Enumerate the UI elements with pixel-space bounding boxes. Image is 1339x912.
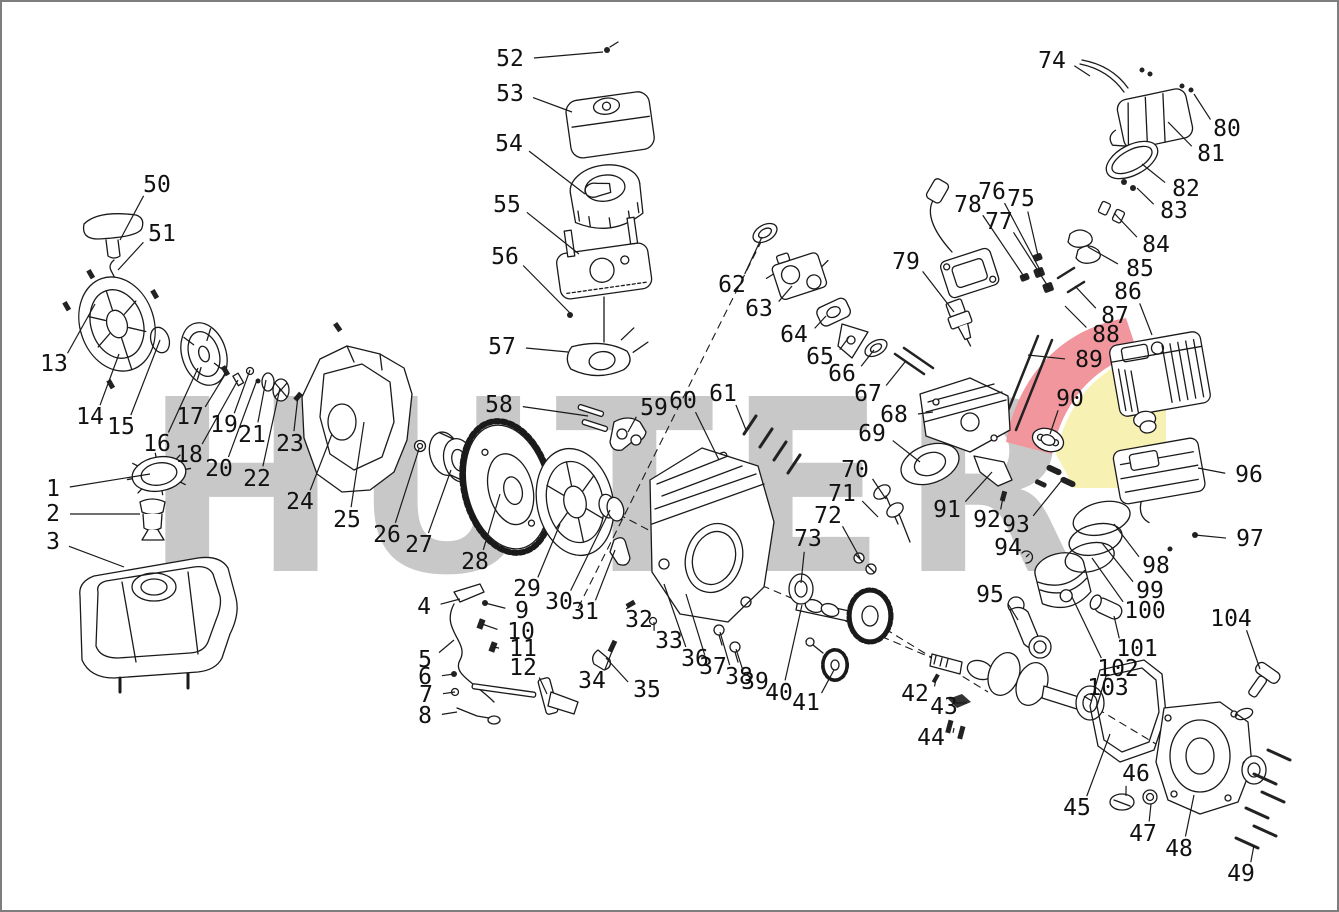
oil-cap-46 — [1110, 794, 1134, 810]
leader-line-80 — [1194, 94, 1211, 120]
part-label-58: 58 — [485, 392, 513, 418]
leader-line-9 — [485, 603, 505, 608]
flywheel-nut — [415, 441, 426, 452]
recoil-starter-housing — [67, 267, 167, 381]
leader-line-7 — [443, 692, 455, 694]
leader-line-67 — [886, 362, 905, 385]
cylinder-head — [920, 378, 1010, 452]
part-label-23: 23 — [276, 431, 304, 457]
part-label-95: 95 — [976, 582, 1004, 608]
part-label-22: 22 — [243, 466, 271, 492]
fuel-valve — [140, 499, 165, 540]
part-label-86: 86 — [1114, 279, 1142, 305]
part-label-18: 18 — [175, 442, 203, 468]
part-label-83: 83 — [1160, 198, 1188, 224]
part-label-79: 79 — [892, 249, 920, 275]
leader-line-98 — [1114, 524, 1139, 557]
part-label-45: 45 — [1063, 795, 1091, 821]
bolt-92 — [1000, 491, 1007, 502]
leader-line-53 — [533, 98, 572, 112]
leader-line-45 — [1087, 734, 1110, 796]
leader-line-3 — [69, 546, 124, 567]
part-label-8: 8 — [418, 703, 432, 729]
part-label-13: 13 — [40, 351, 68, 377]
part-label-34: 34 — [578, 668, 606, 694]
part-label-80: 80 — [1213, 116, 1241, 142]
part-label-47: 47 — [1129, 821, 1157, 847]
starter-pawl — [610, 538, 630, 565]
connecting-rod — [1008, 597, 1051, 658]
part-label-3: 3 — [46, 529, 60, 555]
carb-gasket-62 — [750, 220, 781, 247]
part-label-54: 54 — [495, 131, 523, 157]
air-filter-cover-screw — [604, 42, 618, 53]
plug-cap — [925, 177, 950, 204]
part-label-91: 91 — [933, 497, 961, 523]
part-label-94: 94 — [994, 535, 1022, 561]
leader-line-8 — [442, 712, 457, 714]
part-label-76: 76 — [978, 179, 1006, 205]
part-label-52: 52 — [496, 46, 524, 72]
part-label-12: 12 — [509, 655, 537, 681]
part-label-84: 84 — [1142, 232, 1170, 258]
rocker-assembly — [610, 418, 646, 450]
intake-elbow — [564, 326, 651, 380]
piston-pin — [1088, 593, 1124, 621]
part-label-27: 27 — [405, 532, 433, 558]
cover-small-parts — [1068, 179, 1136, 263]
part-label-32: 32 — [625, 607, 653, 633]
leader-line-23 — [294, 396, 298, 431]
leader-line-101 — [1114, 616, 1119, 638]
leader-line-47 — [1149, 804, 1151, 821]
part-label-46: 46 — [1122, 761, 1150, 787]
part-label-33: 33 — [655, 628, 683, 654]
part-label-103: 103 — [1087, 675, 1129, 701]
leader-line-57 — [526, 348, 568, 352]
coil-bolts — [1058, 268, 1084, 292]
part-label-25: 25 — [333, 507, 361, 533]
leader-line-77 — [1013, 232, 1049, 288]
leader-line-72 — [843, 526, 860, 558]
part-label-16: 16 — [143, 431, 171, 457]
part-label-31: 31 — [571, 599, 599, 625]
part-label-63: 63 — [745, 296, 773, 322]
leader-line-71 — [862, 501, 878, 517]
guard-bolt-97b — [1168, 547, 1173, 552]
part-label-37: 37 — [699, 654, 727, 680]
part-label-64: 64 — [780, 322, 808, 348]
part-label-77: 77 — [985, 209, 1013, 235]
leader-line-10 — [482, 624, 497, 629]
shield-plate-65 — [838, 324, 868, 358]
exploded-engine-diagram: 1234567891011121314151617181920212223242… — [2, 2, 1339, 912]
part-label-60: 60 — [669, 388, 697, 414]
part-label-40: 40 — [765, 680, 793, 706]
leader-line-40 — [785, 605, 802, 680]
cover-bearing — [1242, 756, 1266, 784]
carb-studs-67 — [895, 348, 933, 374]
leader-line-61 — [736, 405, 746, 430]
part-label-48: 48 — [1165, 836, 1193, 862]
leader-line-5 — [439, 640, 454, 653]
leader-line-51 — [118, 242, 143, 270]
muffler-guard — [1112, 437, 1210, 527]
pin-clip — [1022, 551, 1032, 563]
part-label-92: 92 — [973, 507, 1001, 533]
part-label-67: 67 — [854, 381, 882, 407]
leader-line-86 — [1140, 303, 1152, 335]
leader-line-27 — [428, 470, 451, 533]
starter-handle — [84, 214, 143, 258]
part-label-20: 20 — [205, 456, 233, 482]
leader-line-75 — [1028, 211, 1039, 260]
part-label-41: 41 — [792, 690, 820, 716]
valves — [871, 482, 910, 542]
part-label-98: 98 — [1142, 553, 1170, 579]
air-filter-cover — [565, 90, 656, 159]
leader-line-31 — [595, 550, 615, 600]
leader-line-21 — [258, 380, 266, 422]
part-label-89: 89 — [1075, 347, 1103, 373]
leader-line-44 — [953, 728, 954, 733]
part-label-57: 57 — [488, 334, 516, 360]
part-label-1: 1 — [46, 476, 60, 502]
plug-wire — [930, 196, 952, 252]
leader-line-94 — [1026, 554, 1029, 557]
part-label-62: 62 — [718, 272, 746, 298]
head-bolts-58 — [578, 404, 608, 432]
leader-line-84 — [1114, 213, 1137, 237]
bolts-44 — [945, 720, 965, 740]
part-label-43: 43 — [930, 694, 958, 720]
leader-line-54 — [529, 151, 585, 194]
leader-line-49 — [1251, 845, 1254, 862]
cover-screws-80 — [1140, 68, 1194, 93]
leader-line-52 — [534, 52, 603, 58]
fuel-tank — [80, 557, 237, 692]
part-label-28: 28 — [461, 549, 489, 575]
part-label-49: 49 — [1227, 861, 1255, 887]
leader-line-93 — [1033, 480, 1062, 516]
leader-line-91 — [965, 472, 992, 502]
oil-dipstick — [1241, 661, 1282, 704]
part-label-90: 90 — [1056, 386, 1084, 412]
part-label-59: 59 — [640, 395, 668, 421]
leader-line-74 — [1074, 66, 1090, 76]
leader-line-82 — [1142, 164, 1165, 183]
leader-line-104 — [1247, 630, 1260, 669]
leader-line-83 — [1137, 188, 1154, 204]
breather-tube-74 — [1080, 60, 1128, 92]
part-label-26: 26 — [373, 522, 401, 548]
part-label-100: 100 — [1124, 598, 1166, 624]
valve-retainers — [854, 553, 876, 574]
part-label-70: 70 — [841, 457, 869, 483]
part-label-73: 73 — [794, 526, 822, 552]
oil-seal-47 — [1143, 790, 1157, 804]
part-label-17: 17 — [176, 404, 204, 430]
part-label-78: 78 — [954, 192, 982, 218]
piston — [1032, 548, 1094, 612]
part-label-50: 50 — [143, 172, 171, 198]
leader-line-4 — [441, 599, 460, 604]
part-label-51: 51 — [148, 221, 176, 247]
part-label-24: 24 — [286, 489, 314, 515]
part-label-88: 88 — [1092, 322, 1120, 348]
leader-line-35 — [606, 658, 628, 682]
part-label-104: 104 — [1210, 606, 1252, 632]
carburetor — [761, 241, 835, 303]
intake-gasket-66 — [862, 336, 890, 360]
part-label-53: 53 — [496, 81, 524, 107]
part-label-61: 61 — [709, 381, 737, 407]
leader-line-88 — [1065, 306, 1086, 327]
part-label-96: 96 — [1235, 462, 1263, 488]
ratchet-hardware — [221, 365, 313, 410]
starter-pulley — [173, 317, 235, 391]
part-label-30: 30 — [545, 589, 573, 615]
part-label-55: 55 — [493, 192, 521, 218]
part-label-44: 44 — [917, 725, 945, 751]
part-label-29: 29 — [513, 576, 541, 602]
part-label-2: 2 — [46, 501, 60, 527]
parts-diagram-sheet: HUTER — [0, 0, 1339, 912]
governor-gear — [806, 638, 847, 680]
part-label-69: 69 — [858, 421, 886, 447]
part-label-4: 4 — [417, 594, 431, 620]
insulator-plate-64 — [815, 296, 852, 328]
part-label-14: 14 — [76, 404, 104, 430]
leader-line-99 — [1102, 543, 1133, 582]
part-label-42: 42 — [901, 681, 929, 707]
ignition-coil — [939, 247, 1000, 299]
heat-shield — [974, 456, 1012, 486]
part-label-35: 35 — [633, 677, 661, 703]
part-label-15: 15 — [107, 414, 135, 440]
part-label-56: 56 — [491, 244, 519, 270]
part-label-21: 21 — [238, 422, 266, 448]
leader-line-62 — [745, 237, 762, 274]
leader-line-87 — [1075, 286, 1096, 308]
part-label-97: 97 — [1236, 526, 1264, 552]
part-label-19: 19 — [210, 412, 238, 438]
part-label-81: 81 — [1197, 141, 1225, 167]
leader-line-97 — [1195, 535, 1226, 538]
part-label-74: 74 — [1038, 48, 1066, 74]
part-label-66: 66 — [828, 361, 856, 387]
